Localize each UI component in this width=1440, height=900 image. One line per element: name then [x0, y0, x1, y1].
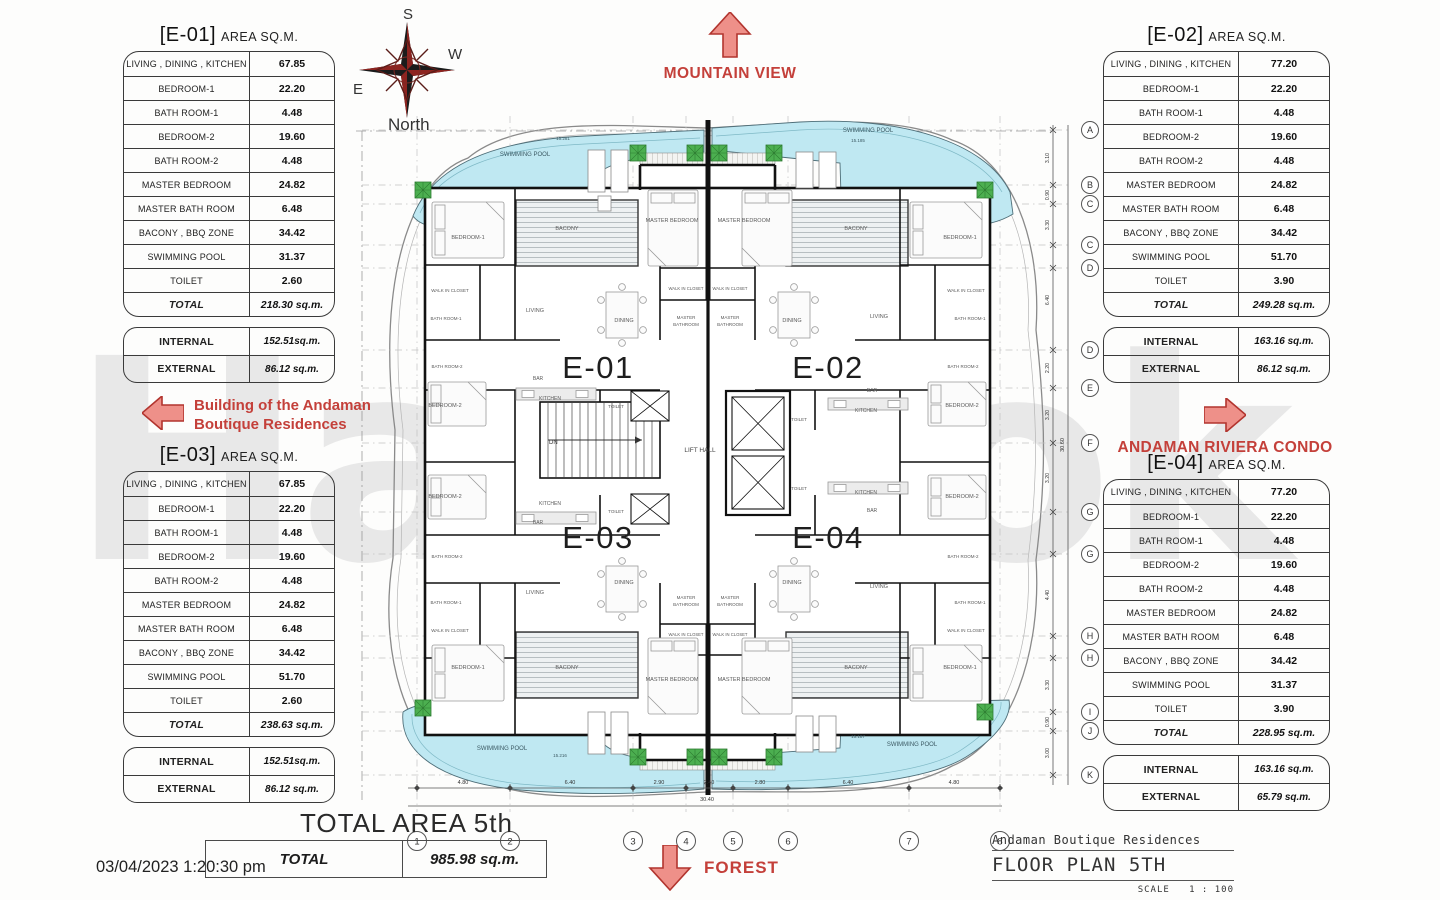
area-row: BEDROOM-219.60 [124, 124, 334, 148]
area-row: BACONY , BBQ ZONE34.42 [124, 640, 334, 664]
area-row: LIVING , DINING , KITCHEN67.85 [124, 472, 334, 496]
area-row-label: BATH ROOM-2 [124, 569, 250, 592]
internal-label: INTERNAL [124, 748, 250, 775]
room-label: DINING [782, 580, 801, 586]
area-row-value: 24.82 [1239, 601, 1329, 624]
room-label: BATH ROOM-2 [432, 364, 463, 369]
bed [648, 190, 698, 266]
area-row-value: 51.70 [250, 665, 334, 688]
area-row-value: 77.20 [1239, 52, 1329, 76]
area-row: SWIMMING POOL51.70 [124, 664, 334, 688]
scale-note: SCALE 1 : 100 [992, 881, 1234, 895]
unit-title: [E-02]AREA SQ.M. [1103, 24, 1330, 47]
area-row-value: 22.20 [1239, 77, 1329, 100]
building-label-line1: Building of the Andaman [194, 396, 371, 415]
svg-text:4.80: 4.80 [458, 780, 469, 786]
area-row-value: 34.42 [250, 221, 334, 244]
room-label: BEDROOM-2 [945, 403, 978, 409]
forest-label: FOREST [704, 858, 779, 878]
room-label: MASTER [677, 595, 697, 600]
internal-label: INTERNAL [1104, 756, 1239, 783]
unit-area-table: LIVING , DINING , KITCHEN67.85BEDROOM-12… [123, 51, 335, 317]
area-row: MASTER BATH ROOM6.48 [124, 196, 334, 220]
area-row-label: TOILET [1104, 269, 1239, 292]
room-label: BAR [533, 376, 544, 382]
area-row: BEDROOM-122.20 [1104, 76, 1329, 100]
room-label: MASTER BEDROOM [646, 677, 699, 683]
room-label: MASTER BEDROOM [646, 218, 699, 224]
area-row-value: 19.60 [250, 125, 334, 148]
compass-north-label: North [388, 115, 430, 134]
lounger [611, 150, 628, 192]
area-row-value: 31.37 [1239, 673, 1329, 696]
area-row-value: 19.60 [250, 545, 334, 568]
room-label: BATH ROOM-2 [948, 554, 979, 559]
unit-title-rest: AREA SQ.M. [221, 30, 298, 44]
lounger [819, 716, 836, 752]
svg-text:0.90: 0.90 [1045, 717, 1051, 727]
room-label: LIVING [870, 584, 888, 590]
forest-arrow-icon [648, 845, 692, 891]
room-label: DINING [614, 580, 633, 586]
room-label: LIVING [526, 308, 544, 314]
unit-block-e03: [E-03]AREA SQ.M.LIVING , DINING , KITCHE… [123, 444, 335, 803]
pool-label: 15.216 [553, 753, 567, 758]
area-row-value: 67.85 [250, 52, 334, 76]
unit-title-bracket: [E-03] [160, 444, 216, 466]
plant-icon [630, 749, 646, 765]
area-total-value: 238.63 sq.m. [250, 713, 334, 736]
svg-text:K: K [1087, 770, 1093, 780]
room-label: BATHROOM [673, 322, 699, 327]
room-label: BEDROOM-1 [451, 235, 484, 241]
room-label: MASTER [677, 315, 697, 320]
area-total-label: TOTAL [1104, 293, 1239, 316]
svg-text:4.80: 4.80 [949, 780, 960, 786]
area-row: BEDROOM-219.60 [1104, 552, 1329, 576]
room-label: BEDROOM-1 [943, 235, 976, 241]
bed [432, 645, 504, 701]
unit-title-rest: AREA SQ.M. [1209, 458, 1286, 472]
bed [910, 202, 982, 258]
svg-text:3.30: 3.30 [1045, 220, 1051, 230]
area-row-value: 24.82 [1239, 173, 1329, 196]
svg-text:G: G [1086, 549, 1093, 559]
area-row: BEDROOM-219.60 [1104, 124, 1329, 148]
lounger [796, 716, 813, 752]
area-row-label: BACONY , BBQ ZONE [1104, 221, 1239, 244]
room-label: BATH ROOM-1 [955, 316, 986, 321]
internal-value: 152.51sq.m. [250, 328, 334, 355]
svg-text:G: G [1086, 507, 1093, 517]
area-row: BACONY , BBQ ZONE34.42 [124, 220, 334, 244]
room-label: LIVING [526, 590, 544, 596]
area-row-value: 3.90 [1239, 269, 1329, 292]
area-row: LIVING , DINING , KITCHEN67.85 [124, 52, 334, 76]
lounger [819, 152, 836, 188]
area-row-label: SWIMMING POOL [124, 665, 250, 688]
lounger [588, 150, 605, 192]
room-label: BAR [533, 520, 544, 526]
area-row: MASTER BEDROOM24.82 [124, 172, 334, 196]
area-row-value: 4.48 [1239, 577, 1329, 600]
area-row-value: 22.20 [250, 497, 334, 520]
external-value: 86.12 sq.m. [250, 356, 334, 382]
room-label: BATHROOM [717, 322, 743, 327]
svg-text:3.20: 3.20 [1045, 473, 1051, 483]
svg-text:A: A [1087, 125, 1093, 135]
forest-annotation: FOREST [648, 845, 808, 891]
drawing-title: FLOOR PLAN 5TH [992, 851, 1234, 881]
room-label: DINING [782, 318, 801, 324]
internal-row: INTERNAL152.51sq.m. [124, 328, 334, 355]
plant-icon [711, 145, 727, 161]
area-total-label: TOTAL [124, 293, 250, 316]
unit-title: [E-03]AREA SQ.M. [123, 444, 335, 467]
plant-icon [630, 145, 646, 161]
room-label: BATH ROOM-2 [432, 554, 463, 559]
room-label: MASTER [721, 595, 741, 600]
compass-rose: S W E North [350, 6, 468, 134]
external-value: 86.12 sq.m. [250, 776, 334, 802]
svg-text:C: C [1087, 240, 1094, 250]
area-row: BATH ROOM-24.48 [1104, 148, 1329, 172]
room-label: WALK IN CLOSET [713, 632, 748, 637]
bed [910, 645, 982, 701]
area-row: TOILET3.90 [1104, 268, 1329, 292]
room-label: BAR [867, 508, 878, 514]
plant-icon [766, 749, 782, 765]
svg-text:J: J [1088, 726, 1093, 736]
room-label: KITCHEN [539, 396, 561, 402]
area-row: TOILET2.60 [124, 688, 334, 712]
unit-title-bracket: [E-01] [160, 24, 216, 46]
mountain-view-annotation: MOUNTAIN VIEW [645, 12, 815, 83]
area-row-label: MASTER BEDROOM [124, 593, 250, 616]
unit-title-rest: AREA SQ.M. [1209, 30, 1286, 44]
unit-mark: E-01 [562, 350, 633, 385]
area-total-value: 249.28 sq.m. [1239, 293, 1329, 316]
external-label: EXTERNAL [124, 356, 250, 382]
area-row: BACONY , BBQ ZONE34.42 [1104, 648, 1329, 672]
area-row-value: 67.85 [250, 472, 334, 496]
total-area-title: TOTAL AREA 5th [300, 808, 513, 839]
room-label: MASTER [721, 315, 741, 320]
area-total-row: TOTAL218.30 sq.m. [124, 292, 334, 316]
unit-block-e04: [E-04]AREA SQ.M.LIVING , DINING , KITCHE… [1103, 452, 1330, 811]
svg-text:6.40: 6.40 [843, 780, 854, 786]
area-row: MASTER BATH ROOM6.48 [124, 616, 334, 640]
room-label: BACONY [555, 226, 579, 232]
unit-block-e02: [E-02]AREA SQ.M.LIVING , DINING , KITCHE… [1103, 24, 1330, 383]
area-row-label: BEDROOM-1 [1104, 505, 1239, 528]
plant-icon [687, 749, 703, 765]
area-row: SWIMMING POOL51.70 [1104, 244, 1329, 268]
area-row-label: BATH ROOM-2 [124, 149, 250, 172]
internal-row: INTERNAL163.16 sq.m. [1104, 328, 1329, 355]
room-label: WALK IN CLOSET [669, 286, 704, 291]
room-label: TOILET [791, 417, 807, 422]
room-label: BACONY [555, 665, 579, 671]
room-label: KITCHEN [855, 408, 877, 414]
room-label: TOILET [608, 404, 624, 409]
external-label: EXTERNAL [1104, 784, 1239, 810]
area-row-label: LIVING , DINING , KITCHEN [1104, 480, 1239, 504]
internal-row: INTERNAL163.16 sq.m. [1104, 756, 1329, 783]
unit-title-rest: AREA SQ.M. [221, 450, 298, 464]
area-row: MASTER BATH ROOM6.48 [1104, 624, 1329, 648]
svg-text:7: 7 [906, 837, 911, 848]
svg-text:3.30: 3.30 [1045, 680, 1051, 690]
area-row-label: SWIMMING POOL [124, 245, 250, 268]
area-row: BATH ROOM-14.48 [124, 100, 334, 124]
area-row: BACONY , BBQ ZONE34.42 [1104, 220, 1329, 244]
area-row-value: 22.20 [250, 77, 334, 100]
area-row-value: 6.48 [1239, 625, 1329, 648]
area-row-label: MASTER BATH ROOM [124, 617, 250, 640]
room-label: BATH ROOM-2 [948, 364, 979, 369]
area-row: BEDROOM-122.20 [124, 496, 334, 520]
area-row-label: BATH ROOM-1 [124, 101, 250, 124]
internal-external-table: INTERNAL152.51sq.m.EXTERNAL86.12 sq.m. [123, 747, 335, 803]
bed [648, 638, 698, 714]
area-row-label: MASTER BATH ROOM [1104, 625, 1239, 648]
area-row-value: 4.48 [1239, 149, 1329, 172]
internal-external-table: INTERNAL163.16 sq.m.EXTERNAL86.12 sq.m. [1103, 327, 1330, 383]
area-row-label: BACONY , BBQ ZONE [1104, 649, 1239, 672]
area-row-value: 4.48 [250, 521, 334, 544]
area-row-value: 77.20 [1239, 480, 1329, 504]
unit-mark: E-02 [792, 350, 863, 385]
internal-label: INTERNAL [1104, 328, 1239, 355]
unit-title-bracket: [E-02] [1147, 24, 1203, 46]
compass-e-label: E [353, 81, 363, 98]
area-row-value: 34.42 [1239, 221, 1329, 244]
pool-label: 15.281 [556, 136, 570, 141]
area-row: BEDROOM-122.20 [1104, 504, 1329, 528]
pool-label: 15.187 [851, 734, 865, 739]
area-row-value: 19.60 [1239, 125, 1329, 148]
pool-label: SWIMMING POOL [887, 742, 938, 748]
area-row-value: 3.90 [1239, 697, 1329, 720]
area-row: BATH ROOM-24.48 [124, 148, 334, 172]
external-label: EXTERNAL [1104, 356, 1239, 382]
area-row: BATH ROOM-24.48 [124, 568, 334, 592]
area-row-label: BEDROOM-1 [124, 77, 250, 100]
area-row-label: MASTER BATH ROOM [1104, 197, 1239, 220]
room-label: WALK IN CLOSET [947, 288, 985, 293]
area-row-value: 19.60 [1239, 553, 1329, 576]
svg-text:D: D [1087, 263, 1094, 273]
mountain-view-label: MOUNTAIN VIEW [645, 65, 815, 83]
plant-icon [711, 749, 727, 765]
mountain-view-arrow-icon [708, 12, 752, 58]
plant-icon [415, 700, 431, 716]
room-label: BEDROOM-2 [945, 494, 978, 500]
area-total-label: TOTAL [124, 713, 250, 736]
timestamp: 03/04/2023 1:20:30 pm [96, 858, 266, 877]
area-row-value: 24.82 [250, 593, 334, 616]
lift-hall-label: LIFT HALL [684, 447, 716, 454]
unit-area-table: LIVING , DINING , KITCHEN67.85BEDROOM-12… [123, 471, 335, 737]
pool-label: SWIMMING POOL [500, 152, 551, 158]
area-row: BEDROOM-219.60 [124, 544, 334, 568]
svg-text:2.40: 2.40 [704, 780, 715, 786]
area-row-label: MASTER BATH ROOM [124, 197, 250, 220]
pool-label: SWIMMING POOL [843, 128, 894, 134]
lounger [588, 712, 605, 754]
area-row-value: 6.48 [1239, 197, 1329, 220]
room-label: BEDROOM-1 [451, 665, 484, 671]
area-row: BATH ROOM-14.48 [1104, 100, 1329, 124]
internal-external-table: INTERNAL163.16 sq.m.EXTERNAL65.79 sq.m. [1103, 755, 1330, 811]
lounger [796, 152, 813, 188]
room-label: BEDROOM-1 [943, 665, 976, 671]
external-value: 86.12 sq.m. [1239, 356, 1329, 382]
total-value: 985.98 sq.m. [403, 841, 546, 877]
area-row-label: SWIMMING POOL [1104, 673, 1239, 696]
room-label: WALK IN CLOSET [947, 628, 985, 633]
external-row: EXTERNAL65.79 sq.m. [1104, 783, 1329, 810]
room-label: BATHROOM [673, 602, 699, 607]
internal-value: 152.51sq.m. [250, 748, 334, 775]
area-row-label: BATH ROOM-2 [1104, 577, 1239, 600]
area-row-label: BATH ROOM-2 [1104, 149, 1239, 172]
room-label: BATH ROOM-1 [431, 600, 462, 605]
area-row: MASTER BEDROOM24.82 [124, 592, 334, 616]
svg-text:3.10: 3.10 [1045, 153, 1051, 163]
area-row: BATH ROOM-14.48 [1104, 528, 1329, 552]
project-name: Andaman Boutique Residences [992, 833, 1234, 851]
svg-text:30.40: 30.40 [700, 797, 714, 803]
area-row-label: BACONY , BBQ ZONE [124, 641, 250, 664]
area-total-row: TOTAL228.95 sq.m. [1104, 720, 1329, 744]
svg-text:2.90: 2.90 [654, 780, 665, 786]
room-label: WALK IN CLOSET [431, 288, 469, 293]
internal-value: 163.16 sq.m. [1239, 756, 1329, 783]
area-row-value: 6.48 [250, 197, 334, 220]
svg-text:F: F [1087, 438, 1093, 448]
svg-text:I: I [1089, 707, 1092, 717]
compass-w-label: W [448, 46, 463, 63]
area-row-label: MASTER BEDROOM [1104, 173, 1239, 196]
room-label: MASTER BEDROOM [718, 218, 771, 224]
bed [742, 638, 792, 714]
svg-text:2.80: 2.80 [755, 780, 766, 786]
area-row-label: BEDROOM-1 [124, 497, 250, 520]
area-row: TOILET3.90 [1104, 696, 1329, 720]
area-row-label: TOILET [124, 689, 250, 712]
plant-icon [977, 182, 993, 198]
external-row: EXTERNAL86.12 sq.m. [124, 775, 334, 802]
building-annotation: Building of the Andaman Boutique Residen… [142, 396, 372, 434]
svg-text:C: C [1087, 199, 1094, 209]
room-label: LIVING [870, 314, 888, 320]
room-label: BEDROOM-2 [428, 403, 461, 409]
area-row: BATH ROOM-14.48 [124, 520, 334, 544]
area-row-label: BEDROOM-2 [1104, 553, 1239, 576]
svg-text:3.00: 3.00 [1045, 748, 1051, 758]
area-row: MASTER BEDROOM24.82 [1104, 172, 1329, 196]
condo-annotation: ANDAMAN RIVIERA CONDO [1105, 398, 1345, 457]
unit-block-e01: [E-01]AREA SQ.M.LIVING , DINING , KITCHE… [123, 24, 335, 383]
area-row-value: 4.48 [250, 101, 334, 124]
area-total-row: TOTAL238.63 sq.m. [124, 712, 334, 736]
area-row-value: 24.82 [250, 173, 334, 196]
area-row-label: SWIMMING POOL [1104, 245, 1239, 268]
room-label: KITCHEN [855, 490, 877, 496]
area-row: MASTER BATH ROOM6.48 [1104, 196, 1329, 220]
svg-text:4.40: 4.40 [1045, 590, 1051, 600]
unit-area-table: LIVING , DINING , KITCHEN77.20BEDROOM-12… [1103, 51, 1330, 317]
area-row-label: BATH ROOM-1 [1104, 529, 1239, 552]
pool-label: 15.185 [851, 138, 865, 143]
area-row-value: 2.60 [250, 269, 334, 292]
area-row-label: TOILET [124, 269, 250, 292]
internal-value: 163.16 sq.m. [1239, 328, 1329, 355]
internal-row: INTERNAL152.51sq.m. [124, 748, 334, 775]
condo-arrow-icon [1204, 398, 1246, 432]
svg-text:DN: DN [549, 440, 558, 446]
area-row-label: TOILET [1104, 697, 1239, 720]
area-row: BEDROOM-122.20 [124, 76, 334, 100]
svg-text:B: B [1087, 180, 1093, 190]
room-label: BATH ROOM-1 [431, 316, 462, 321]
plant-icon [977, 704, 993, 720]
external-label: EXTERNAL [124, 776, 250, 802]
room-label: WALK IN CLOSET [713, 286, 748, 291]
external-value: 65.79 sq.m. [1239, 784, 1329, 810]
internal-external-table: INTERNAL152.51sq.m.EXTERNAL86.12 sq.m. [123, 327, 335, 383]
area-row-value: 4.48 [1239, 101, 1329, 124]
external-row: EXTERNAL86.12 sq.m. [1104, 355, 1329, 382]
svg-text:0.90: 0.90 [1045, 190, 1051, 200]
svg-text:3: 3 [630, 837, 635, 848]
internal-label: INTERNAL [124, 328, 250, 355]
area-row-label: BEDROOM-2 [124, 125, 250, 148]
plant-icon [687, 145, 703, 161]
svg-text:H: H [1087, 653, 1094, 663]
area-row: LIVING , DINING , KITCHEN77.20 [1104, 480, 1329, 504]
area-row-value: 34.42 [250, 641, 334, 664]
plant-icon [415, 182, 431, 198]
room-label: BEDROOM-2 [428, 494, 461, 500]
bed [742, 190, 792, 266]
external-row: EXTERNAL86.12 sq.m. [124, 355, 334, 382]
area-row: LIVING , DINING , KITCHEN77.20 [1104, 52, 1329, 76]
unit-area-table: LIVING , DINING , KITCHEN77.20BEDROOM-12… [1103, 479, 1330, 745]
area-row-value: 34.42 [1239, 649, 1329, 672]
area-row-value: 2.60 [250, 689, 334, 712]
lounger [611, 712, 628, 754]
area-row-value: 4.48 [250, 149, 334, 172]
svg-text:E: E [1087, 383, 1093, 393]
area-row-label: LIVING , DINING , KITCHEN [124, 52, 250, 76]
svg-text:H: H [1087, 631, 1094, 641]
room-label: BATH ROOM-1 [955, 600, 986, 605]
area-row-value: 31.37 [250, 245, 334, 268]
area-row-label: BEDROOM-2 [124, 545, 250, 568]
area-total-value: 228.95 sq.m. [1239, 721, 1329, 744]
compass-s-label: S [403, 6, 413, 23]
unit-mark: E-03 [562, 520, 633, 555]
area-row-value: 6.48 [250, 617, 334, 640]
unit-title: [E-01]AREA SQ.M. [123, 24, 335, 47]
area-row-label: MASTER BEDROOM [124, 173, 250, 196]
room-label: BAR [867, 388, 878, 394]
room-label: BACONY [844, 665, 868, 671]
svg-text:2.20: 2.20 [1045, 363, 1051, 373]
